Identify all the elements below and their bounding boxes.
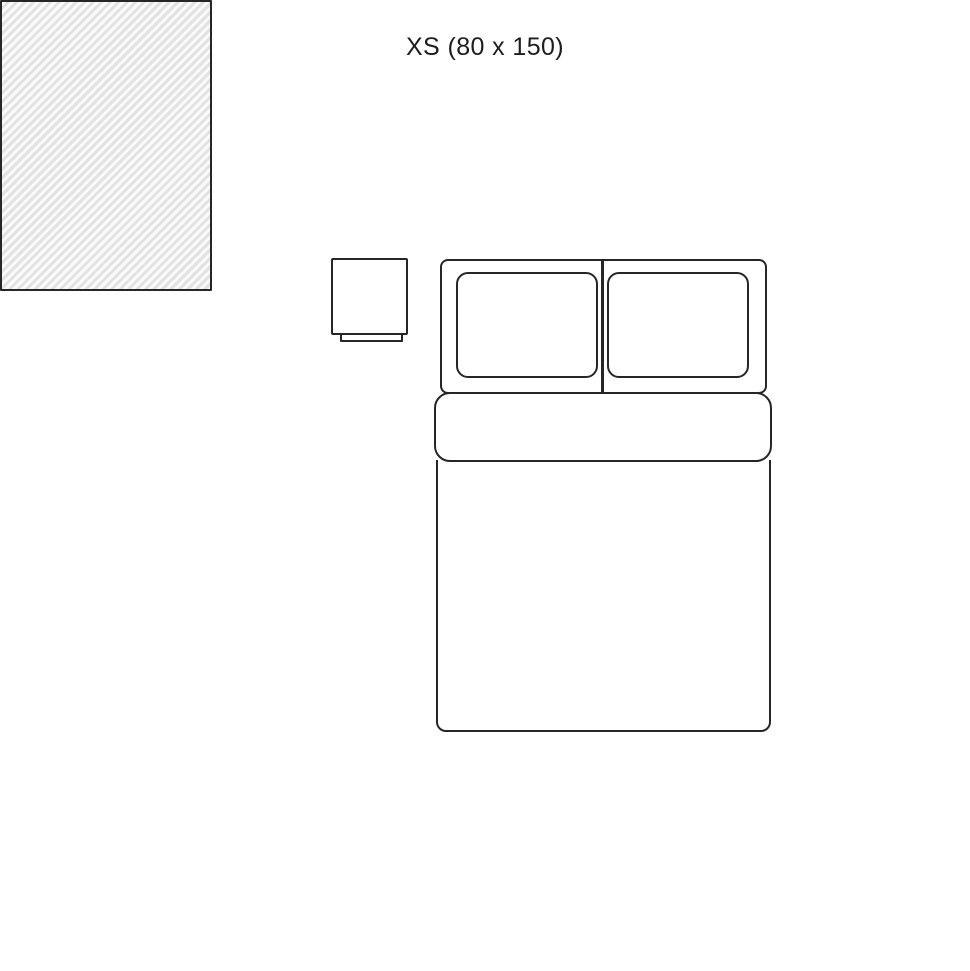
pillow-right-icon xyxy=(607,272,749,378)
bed-duvet-fold xyxy=(434,392,772,462)
nightstand-top xyxy=(331,258,408,335)
pillow-left-icon xyxy=(456,272,598,378)
page-title: XS (80 x 150) xyxy=(0,33,970,62)
bed-headboard-divider xyxy=(601,261,604,392)
bed-body xyxy=(436,460,771,732)
rug-size-diagram: XS (80 x 150) xyxy=(0,0,970,971)
